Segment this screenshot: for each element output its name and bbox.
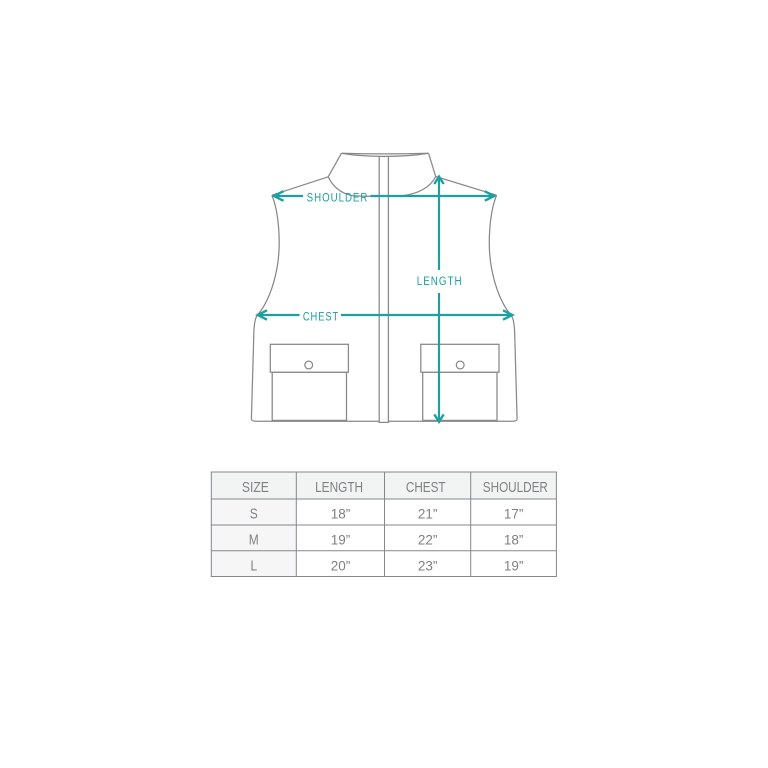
svg-text:19”: 19”	[331, 532, 351, 548]
svg-text:SHOULDER: SHOULDER	[483, 480, 548, 496]
svg-text:23”: 23”	[418, 558, 438, 574]
svg-text:SHOULDER: SHOULDER	[307, 191, 369, 204]
svg-text:SIZE: SIZE	[242, 480, 269, 496]
svg-text:19”: 19”	[504, 558, 524, 574]
svg-text:21”: 21”	[418, 506, 438, 522]
svg-text:L: L	[250, 557, 257, 573]
svg-text:17”: 17”	[504, 506, 524, 522]
svg-text:M: M	[249, 531, 259, 547]
svg-text:CHEST: CHEST	[406, 480, 446, 496]
svg-text:S: S	[250, 505, 258, 521]
svg-text:18”: 18”	[331, 506, 351, 522]
svg-text:LENGTH: LENGTH	[417, 275, 463, 288]
svg-text:CHEST: CHEST	[303, 310, 339, 323]
svg-text:18”: 18”	[504, 532, 524, 548]
svg-text:22”: 22”	[418, 532, 438, 548]
svg-text:20”: 20”	[331, 558, 351, 574]
svg-text:LENGTH: LENGTH	[315, 480, 363, 496]
